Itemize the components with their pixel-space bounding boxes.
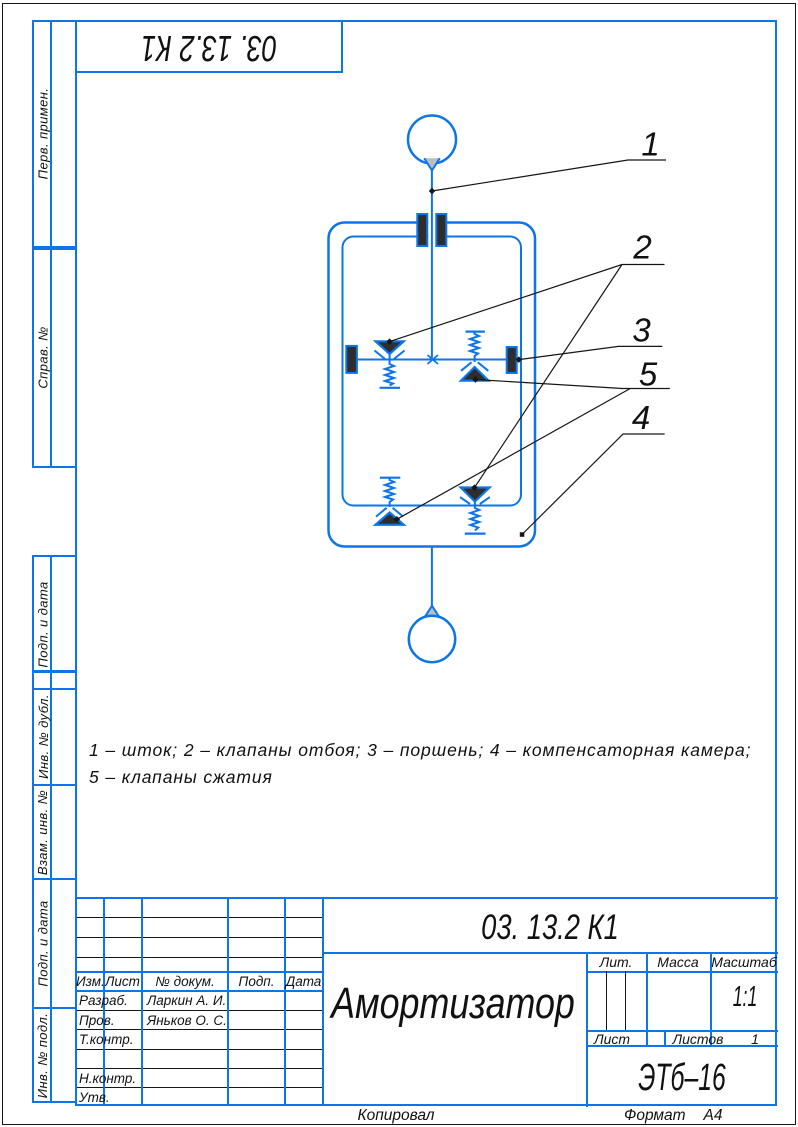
svg-text:3: 3: [632, 312, 651, 349]
svg-text:4: 4: [632, 399, 650, 436]
svg-text:5: 5: [639, 356, 658, 393]
svg-text:1: 1: [641, 126, 659, 163]
svg-text:2: 2: [632, 229, 651, 266]
